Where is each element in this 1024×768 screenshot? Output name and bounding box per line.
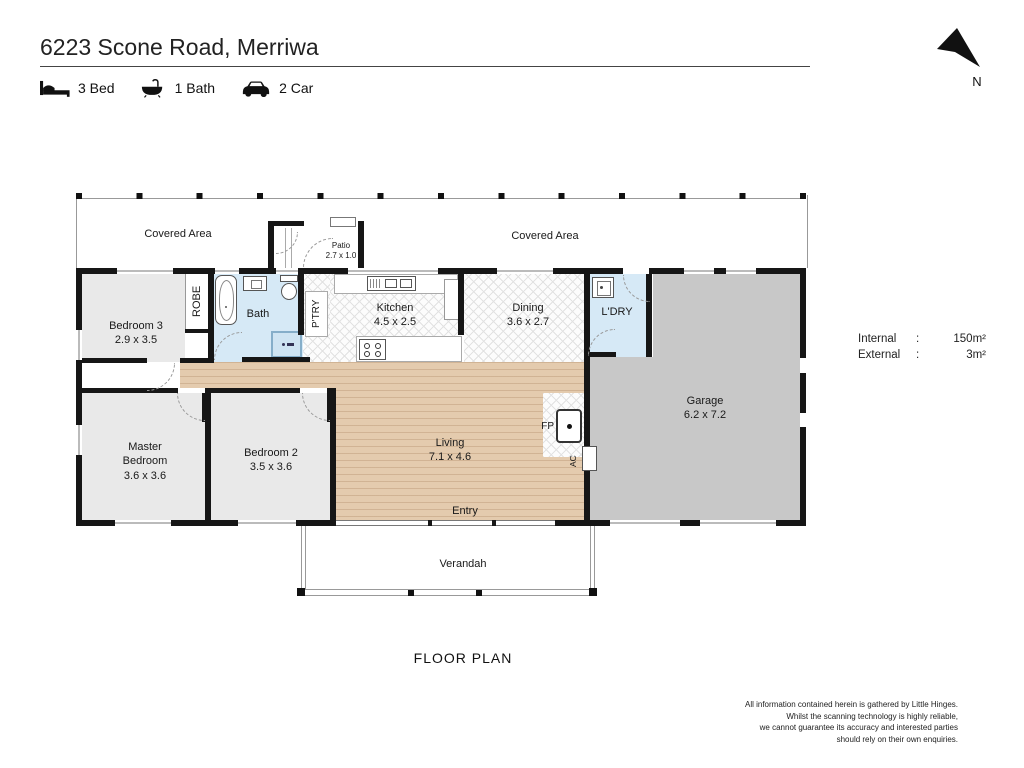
bedroom2-label: Bedroom 2 3.5 x 3.6: [221, 446, 321, 475]
floor-plan-title: FLOOR PLAN: [363, 650, 563, 666]
entry-glazing: [336, 520, 555, 526]
kitchen-label: Kitchen 4.5 x 2.5: [345, 301, 445, 330]
glazing-mullion: [492, 520, 496, 526]
washing-machine: [592, 277, 614, 298]
covered-area-right-label: Covered Area: [485, 229, 605, 243]
room-name: Garage: [655, 394, 755, 408]
disclaimer-line: we cannot guarantee its accuracy and int…: [558, 722, 958, 734]
bath-label: Bath: [233, 307, 283, 321]
external-separator: :: [916, 349, 926, 361]
feature-row: 3 Bed 1 Bath 2 Car: [40, 78, 313, 98]
wall-segment: [76, 388, 178, 393]
wall-segment: [242, 357, 310, 362]
feature-baths: 1 Bath: [141, 78, 215, 98]
verandah-post: [476, 590, 482, 596]
toilet: [281, 283, 297, 300]
window: [684, 268, 714, 274]
room-dims: 6.2 x 7.2: [655, 408, 755, 422]
fireplace-label: FP: [534, 420, 554, 433]
patio-label: Patio 2.7 x 1.0: [317, 241, 365, 262]
room-name: Patio: [317, 241, 365, 251]
north-arrow-icon: N: [930, 24, 986, 90]
window: [76, 330, 82, 360]
window: [215, 268, 239, 274]
bed-icon: [40, 79, 70, 97]
door-opening: [623, 268, 649, 274]
window: [115, 520, 171, 526]
room-name: Master Bedroom: [109, 440, 181, 469]
wall-segment: [76, 358, 147, 363]
room-dims: 3.6 x 3.6: [109, 469, 181, 483]
wall-right: [800, 268, 806, 526]
wall-segment: [185, 329, 214, 333]
feature-beds: 3 Bed: [40, 79, 115, 97]
room-dims: 2.9 x 3.5: [86, 333, 186, 347]
room-name: Bedroom 3: [86, 319, 186, 333]
internal-value: 150m²: [926, 333, 986, 345]
window: [276, 268, 298, 274]
feature-beds-label: 3 Bed: [78, 80, 115, 96]
fireplace: [556, 409, 582, 443]
toilet-cistern: [280, 275, 298, 282]
wall-segment: [298, 271, 304, 335]
wall-segment: [268, 221, 304, 226]
wall-segment: [268, 221, 274, 268]
glazing-mullion: [428, 520, 432, 526]
roof-posts: [76, 193, 806, 199]
cooktop: [359, 339, 386, 360]
room-name: Living: [400, 436, 500, 450]
room-name: Bedroom 2: [221, 446, 321, 460]
feature-cars-label: 2 Car: [279, 80, 313, 96]
wall-recess: [800, 358, 806, 373]
north-label: N: [972, 74, 981, 89]
room-dims: 3.5 x 3.6: [221, 460, 321, 474]
feature-cars: 2 Car: [241, 79, 313, 97]
living-label: Living 7.1 x 4.6: [400, 436, 500, 465]
shower: [271, 331, 302, 358]
wall-recess: [800, 413, 806, 427]
kitchen-sink: [367, 276, 416, 291]
master-bedroom-label: Master Bedroom 3.6 x 3.6: [109, 440, 181, 483]
room-name: Kitchen: [345, 301, 445, 315]
wall-segment: [208, 271, 214, 362]
title-divider: [40, 66, 810, 67]
external-value: 3m²: [926, 349, 986, 361]
fridge-space: [444, 279, 459, 320]
wall-segment: [180, 358, 214, 363]
feature-baths-label: 1 Bath: [175, 80, 215, 96]
patio-step: [330, 217, 356, 227]
wall-left: [76, 268, 82, 526]
window: [76, 425, 82, 455]
verandah-label: Verandah: [413, 557, 513, 571]
external-label: External: [858, 349, 916, 361]
bedroom3-label: Bedroom 3 2.9 x 3.5: [86, 319, 186, 348]
pantry-label-box: P'TRY: [305, 291, 328, 337]
laundry-label: L'DRY: [587, 305, 647, 319]
page-title: 6223 Scone Road, Merriwa: [40, 34, 319, 61]
window: [610, 520, 680, 526]
external-area-row: External : 3m²: [858, 349, 986, 361]
window: [700, 520, 776, 526]
bath-icon: [141, 78, 167, 98]
entry-label: Entry: [435, 504, 495, 518]
disclaimer-line: should rely on their own enquiries.: [558, 734, 958, 746]
window: [348, 268, 438, 274]
verandah-post: [589, 588, 597, 596]
disclaimer-line: All information contained herein is gath…: [558, 699, 958, 711]
robe-label: ROBE: [186, 273, 208, 329]
ac-unit: [582, 446, 597, 471]
wall-segment: [584, 357, 590, 520]
bathroom-sink: [243, 276, 267, 291]
verandah-post: [297, 588, 305, 596]
area-summary: Internal : 150m² External : 3m²: [858, 333, 986, 365]
window: [117, 268, 173, 274]
wall-segment: [205, 388, 300, 393]
hallway-floor: [180, 362, 336, 388]
verandah-post: [408, 590, 414, 596]
dining-label: Dining 3.6 x 2.7: [478, 301, 578, 330]
room-dims: 7.1 x 4.6: [400, 450, 500, 464]
room-name: Dining: [478, 301, 578, 315]
internal-separator: :: [916, 333, 926, 345]
room-dims: 2.7 x 1.0: [317, 251, 365, 261]
disclaimer-line: Whilst the scanning technology is highly…: [558, 711, 958, 723]
window: [238, 520, 296, 526]
room-dims: 4.5 x 2.5: [345, 315, 445, 329]
bedroom3-floor: [80, 271, 185, 362]
wall-segment: [458, 271, 464, 335]
internal-area-row: Internal : 150m²: [858, 333, 986, 345]
disclaimer: All information contained herein is gath…: [558, 699, 958, 745]
floor-plan-page: 6223 Scone Road, Merriwa 3 Bed 1 Bath: [0, 0, 1024, 768]
pantry-label: P'TRY: [306, 292, 327, 336]
wall-segment: [330, 388, 336, 520]
window: [497, 268, 553, 274]
car-icon: [241, 79, 271, 97]
wall-segment: [205, 388, 211, 520]
internal-label: Internal: [858, 333, 916, 345]
room-dims: 3.6 x 2.7: [478, 315, 578, 329]
garage-label: Garage 6.2 x 7.2: [655, 394, 755, 423]
covered-area-left-label: Covered Area: [118, 227, 238, 241]
window: [726, 268, 756, 274]
door-swing-arc: [147, 363, 175, 391]
ac-label: AC: [566, 449, 580, 473]
